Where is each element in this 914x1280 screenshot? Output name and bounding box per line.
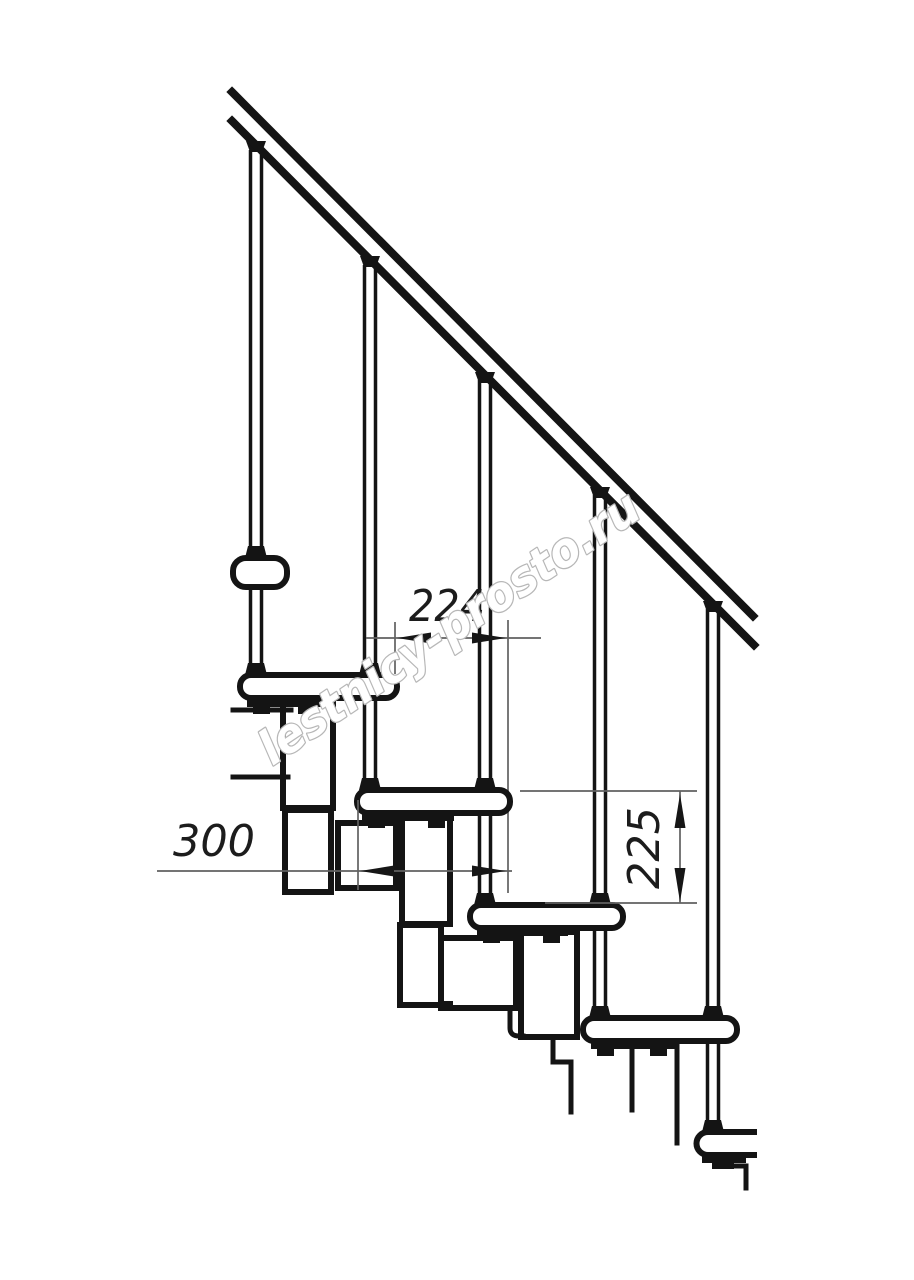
floor-step-line <box>716 1166 746 1188</box>
baluster-4 <box>590 487 610 1012</box>
module-cube-1 <box>285 810 331 892</box>
wall-bracket <box>233 558 287 587</box>
module-joint-mark <box>439 1001 453 1011</box>
tread-2 <box>357 790 510 813</box>
module-bridge-1 <box>338 823 396 888</box>
watermark-text: lestnicy-prosto.ru <box>248 480 650 776</box>
handrail-top-line <box>232 92 753 616</box>
dimension-label-depth: 300 <box>173 816 255 867</box>
staircase-side-view-drawing: 224 300 225 lestnicy-prosto.ru <box>0 0 914 1280</box>
staircase-drawing-page: 224 300 225 lestnicy-prosto.ru <box>0 0 914 1280</box>
tread-5-partial <box>697 1132 758 1155</box>
handrail <box>232 92 754 645</box>
arrowhead-down-icon <box>675 868 686 902</box>
arrowhead-up-icon <box>675 794 686 828</box>
dimension-rise-225: 225 <box>520 791 697 903</box>
module-cube-2 <box>400 925 441 1005</box>
module-bridge-2 <box>441 938 516 1008</box>
dimension-label-rise: 225 <box>619 807 670 889</box>
module-column-3 <box>521 932 577 1037</box>
baluster-5 <box>703 601 723 1126</box>
tread-3 <box>470 905 623 928</box>
cutoff-line-1 <box>553 1038 571 1112</box>
tread-4 <box>583 1018 737 1041</box>
